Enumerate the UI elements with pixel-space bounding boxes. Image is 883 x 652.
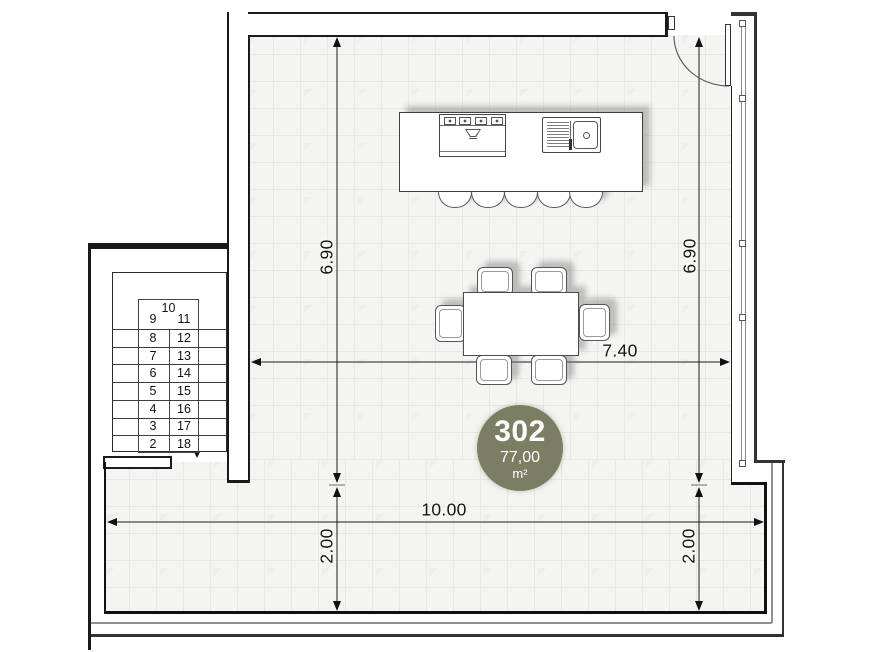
arrow-down-icon	[333, 601, 341, 611]
stair-step-line	[113, 382, 226, 383]
stair-step-line	[113, 329, 226, 330]
arrow-up-icon	[695, 487, 703, 497]
stair-step-number: 14	[177, 366, 191, 380]
dimension-label-room-height-left: 6.90	[317, 239, 338, 274]
dimension-label-terrace-depth-left: 2.00	[317, 528, 338, 563]
stair-step-number: 13	[177, 349, 191, 363]
arrow-up-icon	[333, 37, 341, 47]
stair-step-number: 16	[177, 402, 191, 416]
arrow-down-icon	[695, 473, 703, 483]
arrow-right-icon	[720, 358, 730, 366]
stair-grid: 10987654321112131415161718	[112, 272, 227, 452]
unit-area: 77,00	[500, 449, 540, 467]
floor-plan: 10987654321112131415161718 6.90 6.90	[0, 0, 883, 652]
stair-step-number: 5	[150, 384, 157, 398]
dimension-label-room-width: 7.40	[602, 341, 637, 362]
stair-step-line	[113, 418, 226, 419]
stair-step-number: 10	[162, 301, 176, 315]
stair-step-number: 9	[150, 312, 157, 326]
arrow-up-icon	[695, 37, 703, 47]
stair-step-number: 4	[150, 402, 157, 416]
arrow-left-icon	[107, 518, 117, 526]
stair-step-number: 8	[150, 331, 157, 345]
dimension-label-terrace-depth-right: 2.00	[679, 528, 700, 563]
stair-step-line	[113, 364, 226, 365]
stair-step-number: 12	[177, 331, 191, 345]
unit-badge: 302 77,00 m²	[477, 405, 563, 491]
arrow-up-icon	[333, 487, 341, 497]
stair-step-line	[113, 435, 226, 436]
arrow-left-icon	[251, 358, 261, 366]
dimension-label-room-height-right: 6.90	[680, 238, 701, 273]
stair-step-line	[113, 347, 226, 348]
stair-step-number: 6	[150, 366, 157, 380]
stair-step-number: 18	[177, 437, 191, 451]
stair-step-number: 17	[177, 419, 191, 433]
arrow-right-icon	[754, 518, 764, 526]
unit-area-unit: m²	[512, 467, 527, 480]
stair-step-number: 2	[150, 437, 157, 451]
stair-step-number: 3	[150, 419, 157, 433]
arrow-down-icon	[333, 473, 341, 483]
stair-step-number: 7	[150, 349, 157, 363]
stair-step-number: 11	[178, 312, 191, 326]
arrow-down-icon	[695, 601, 703, 611]
stair-step-number: 15	[177, 384, 191, 398]
dimension-label-terrace-width: 10.00	[421, 500, 466, 521]
stair-step-line	[113, 400, 226, 401]
unit-number: 302	[494, 417, 546, 447]
